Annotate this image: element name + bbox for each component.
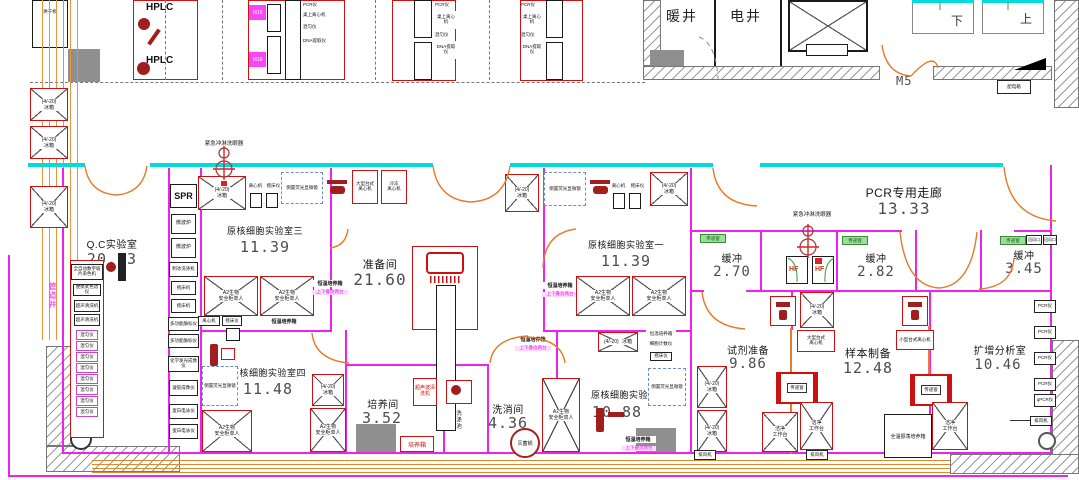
return-air-tag: 回风口 — [1043, 235, 1057, 245]
equip-label: 制冰洗涤机 — [169, 262, 198, 277]
room-prep-area: 21.60 — [352, 270, 408, 289]
equipment-glyph — [596, 408, 604, 432]
equip-label: 混匀仪 — [76, 352, 98, 362]
microscope-glyph — [330, 186, 345, 194]
fridge-box: (4/-20) 冰箱 — [598, 332, 638, 352]
heating-shaft-label: 暖井 — [666, 6, 698, 26]
wall — [915, 230, 917, 290]
auto-incubator-box: 全温振荡培养箱 — [884, 414, 932, 458]
lab-floor-plan: 烘干机 HPLC HPLC M10 M10 PCR仪 桌上离心机 混匀仪 DNA… — [0, 0, 1079, 480]
equipment-glyph — [608, 412, 624, 417]
equip-label: 混匀仪 — [435, 31, 455, 40]
clean-bench: 洁净工作台 — [800, 402, 833, 450]
centrifuge-cold-box: 冷冻离心机 — [381, 170, 407, 204]
equip-label: PCR仪 — [435, 1, 455, 10]
stacked-note: 上下叠放两台 — [312, 290, 348, 295]
cabinet — [266, 193, 278, 208]
door-m5-label: M5 — [896, 74, 912, 88]
cabinet — [629, 193, 641, 209]
wall — [980, 230, 982, 290]
equip-label: 摇床机 — [171, 281, 196, 295]
pass-window: 传递窗 — [776, 372, 818, 404]
microscope-glyph — [327, 180, 347, 184]
equip-label: 多功能酶标仪 — [168, 334, 199, 348]
pcr-machine: PCR仪 — [1034, 326, 1056, 339]
room-amplification-area: 10.46 — [972, 357, 1024, 373]
pipe-shaft-label: 管道井 — [44, 282, 58, 328]
inverted-microscope-box: 倒置荧光显微镜 — [202, 366, 238, 406]
wall-hatch — [1054, 0, 1079, 108]
workstation-glyph — [106, 262, 116, 272]
equip-label: 离心机 — [247, 182, 264, 191]
section-dash — [375, 0, 376, 80]
biosafety-cabinet-double: A2生物安全柜双人 — [542, 378, 580, 452]
wall-hatch — [950, 454, 1079, 474]
centrifuge-small-box: 小型台式离心机 — [896, 330, 934, 350]
fridge-box: (4/-20)冰箱 — [697, 366, 727, 408]
fridge-box: (4/-20)冰箱 — [505, 174, 539, 212]
inverted-microscope-box: 倒置荧光显微镜 — [281, 172, 323, 204]
door-tag: M10 — [249, 52, 266, 67]
room-lab1-name: 原核细胞实验室一 — [566, 238, 686, 251]
fridge-box: (4/-20)冰箱 — [697, 410, 727, 452]
room-buffer3-name: 缓冲 — [1004, 247, 1044, 262]
equip-label: 混匀仪 — [303, 23, 333, 32]
fridge-box: (4/-20)冰箱 — [30, 126, 68, 159]
section-dash — [222, 0, 223, 80]
exterior-wall — [8, 475, 1068, 477]
room-qc-name: Q.C实验室 — [72, 236, 152, 251]
stair-flight — [982, 0, 1044, 34]
equip-label: 化学发光成像仪 — [168, 356, 199, 372]
equip-label: 超声清洗机 — [74, 300, 100, 312]
curtain-wall — [150, 163, 433, 167]
biosafety-cabinet: A2生物安全柜单人 — [202, 410, 252, 452]
cabinet — [267, 4, 281, 32]
power-box: 配电箱 — [997, 80, 1031, 94]
gray-block — [356, 424, 396, 452]
equip-label: 离心机 — [610, 182, 627, 191]
centrifuge-large-box: 大型台式离心机 — [797, 330, 835, 352]
incubator-label: 恒温培养箱 — [266, 318, 302, 325]
biosafety-cabinet: A2生物安全柜单人 — [204, 276, 258, 316]
equip-label: 微波炉 — [171, 238, 196, 258]
equip-label: 混匀仪 — [521, 31, 541, 40]
fridge-box: (4/-20)冰箱 — [198, 176, 246, 210]
stair-up-label: 上 — [1020, 10, 1032, 27]
door-tag: M10 — [249, 5, 266, 20]
room-buffer1-name: 缓冲 — [712, 250, 752, 265]
equip-label: 微波炉 — [171, 214, 196, 234]
cabinet — [226, 328, 240, 341]
equip-label: 桌上离心机 — [303, 11, 341, 20]
sink-label: 洗涤池 — [450, 410, 462, 442]
fridge-box: (4/-20)冰箱 — [30, 186, 68, 228]
shaft-wall — [714, 0, 716, 66]
wall — [1014, 230, 1052, 232]
service-band — [92, 458, 954, 473]
curtain-wall — [510, 163, 713, 167]
biosafety-cabinet: A2生物安全柜单人 — [310, 408, 346, 452]
equip-label: 混匀仪 — [76, 374, 98, 384]
equip-label: 超声清洗机 — [74, 314, 100, 326]
stacked-note: 上下叠放两台 — [515, 346, 551, 351]
cabinet — [250, 193, 262, 208]
incubator-red-box: 培养箱 — [400, 436, 434, 452]
biosafety-cabinet: A2生物安全柜单人 — [576, 276, 630, 316]
curtain-wall — [760, 163, 1003, 167]
hplc-glyph — [138, 18, 150, 30]
section-dash — [489, 0, 490, 80]
pass-window-tag: 传递窗 — [1000, 236, 1026, 245]
hf-label: HF — [789, 266, 798, 273]
incubator-label: 恒温培养箱 — [312, 280, 348, 287]
clean-bench: 洁净工作台 — [932, 402, 968, 450]
room-lab4-area: 11.48 — [240, 380, 296, 398]
incubator-label: 恒温培养箱 — [514, 336, 552, 343]
equipment-glyph — [911, 310, 919, 320]
equip-label: PCR仪 — [521, 1, 541, 10]
fridge-box: (4/-20)冰箱 — [650, 172, 688, 206]
exhaust-fan-tag: 排风机 — [1030, 416, 1052, 426]
equipment-glyph — [779, 310, 787, 320]
microscope-glyph — [590, 180, 610, 184]
wall — [836, 230, 838, 290]
equip-label: 摇床仪 — [222, 316, 242, 326]
bench — [285, 0, 301, 80]
cabinet — [546, 42, 563, 80]
curtain-wall — [28, 163, 85, 167]
room-lab3-name: 原核细胞实验室三 — [202, 224, 328, 237]
room-buffer1-area: 2.70 — [710, 264, 754, 280]
wall — [746, 290, 1052, 292]
equip-label: PCR仪 — [303, 1, 333, 10]
exhaust-fan-tag: 排风机 — [806, 450, 828, 460]
ultrasonic-washer-box: 超声波清洗机 — [413, 378, 437, 406]
electric-shaft-label: 电井 — [730, 6, 762, 26]
pcr-machine: PCR仪 — [1034, 300, 1056, 313]
equip-label: 离心机 — [198, 316, 220, 326]
cabinet — [267, 36, 281, 74]
stair-flight — [912, 0, 974, 34]
microscope-glyph — [593, 186, 608, 194]
equipment-glyph — [776, 302, 790, 307]
equip-label: 全自动数字玻片染色机 — [71, 264, 103, 280]
hplc-label: HPLC — [146, 55, 194, 68]
equip-label: 混匀仪 — [76, 341, 98, 351]
emergency-shower-label: 紧急冲淋洗眼器 — [192, 139, 256, 148]
equipment-glyph — [430, 276, 460, 283]
equip-label: 凝胶成像仪 — [169, 380, 198, 396]
exhaust-fan-tag: 排风机 — [694, 450, 716, 460]
biosafety-cabinet: A2生物安全柜单人 — [632, 276, 686, 316]
equipment-glyph — [908, 302, 922, 307]
leader-line — [1010, 420, 1030, 421]
equip-label: 混匀仪 — [76, 407, 98, 417]
equipment-glyph — [210, 344, 218, 366]
room-buffer3-area: 3.45 — [1002, 261, 1046, 277]
fridge-box: (4/-20)冰箱 — [30, 88, 68, 121]
cabinet — [546, 0, 563, 38]
equip-label: 摇床仪 — [265, 182, 282, 191]
equip-label: 细胞计数仪 — [646, 340, 676, 349]
floor-drain — [1038, 432, 1056, 450]
fridge-box: (4/-20)冰箱 — [800, 292, 834, 328]
room-amplification-name: 扩增分析室 — [962, 342, 1038, 357]
stair-edge — [912, 0, 974, 3]
equip-label: 蛋白电泳仪 — [169, 404, 198, 419]
equip-label: DNA提取仪 — [521, 41, 543, 59]
wall — [690, 290, 704, 292]
stacked-note: 上下叠放两台 — [542, 292, 578, 297]
equip-label: 桌上离心机 — [521, 11, 543, 29]
return-air-tag: 回风口 — [1026, 235, 1042, 245]
exterior-wall — [8, 255, 10, 477]
wall — [690, 168, 692, 454]
cabinet — [414, 42, 432, 80]
wall — [200, 330, 332, 332]
stair-down-label: 下 — [951, 12, 963, 29]
inverted-microscope-box: 倒置荧光显微镜 — [648, 368, 686, 406]
room-reagent-area: 9.86 — [724, 356, 772, 372]
equip-label: 摇床仪 — [629, 182, 646, 191]
pass-window-tag: 传递窗 — [700, 234, 726, 243]
stair-edge — [982, 0, 1044, 3]
workstation-glyph — [118, 253, 126, 281]
spr-box: SPR — [170, 184, 197, 208]
room-corridor-area: 13.33 — [876, 199, 932, 218]
qpcr-machine: qPCR仪 — [1034, 394, 1056, 407]
equip-label: DNA提取仪 — [303, 37, 343, 46]
inverted-microscope-box: 倒置荧光显微镜 — [544, 172, 586, 206]
room-lab3-area: 11.39 — [235, 238, 295, 256]
equip-label: 恒温培养箱 — [646, 330, 676, 339]
equipment-glyph — [426, 252, 464, 274]
ramp-triangle — [1014, 58, 1046, 70]
equip-label: 便携式色谱仪 — [73, 284, 101, 296]
pcr-machine: PCR仪 — [1034, 352, 1056, 365]
equip-label: DNA提取仪 — [435, 41, 457, 59]
equip-label: 混匀仪 — [76, 363, 98, 373]
cut-line — [30, 82, 645, 83]
wall — [345, 364, 489, 366]
room-buffer2-area: 2.82 — [854, 264, 898, 280]
emergency-shower-label: 紧急冲淋洗眼器 — [780, 210, 844, 219]
wall — [690, 230, 902, 232]
stacked-note: 上下叠放两台 — [622, 446, 656, 451]
section-dash — [165, 0, 166, 80]
fridge-box: (4/-20)冰箱 — [312, 374, 344, 406]
equip-label: 摇床机 — [171, 299, 196, 313]
equip-label: 摇床仪 — [650, 352, 672, 361]
autoclave: 灭菌锅 — [510, 428, 540, 458]
equip-label: 混匀仪 — [76, 385, 98, 395]
room-reagent-name: 试剂准备 — [722, 342, 774, 357]
elevator-door — [806, 44, 848, 56]
incubator-label: 恒温培养箱 — [620, 436, 656, 443]
hplc-glyph — [137, 62, 150, 75]
room-lab1-area: 11.39 — [586, 252, 666, 270]
clean-bench: 洁净工作台 — [762, 412, 798, 452]
equip-label: 蛋白电泳仪 — [169, 424, 198, 439]
biosafety-cabinet: A2生物安全柜单人 — [260, 276, 314, 316]
room-buffer2-name: 缓冲 — [856, 250, 896, 265]
shaft-wall — [780, 0, 782, 66]
wall — [760, 230, 762, 290]
equipment-glyph — [451, 385, 461, 395]
equip-label: 混匀仪 — [76, 330, 98, 340]
incubator-label: 恒温培养箱 — [542, 282, 578, 289]
equip-label: 混匀仪 — [76, 396, 98, 406]
cabinet — [414, 0, 432, 38]
hf-label: HF — [815, 266, 824, 273]
equipment-glyph — [221, 348, 235, 360]
hplc-label: HPLC — [146, 2, 194, 15]
room-sample-area: 12.48 — [840, 359, 896, 377]
equip-label: 多功能酶标仪 — [168, 317, 199, 331]
equip-label: 桌上离心机 — [435, 11, 457, 29]
pcr-machine: PCR仪 — [1034, 378, 1056, 391]
cabinet — [613, 193, 625, 209]
pass-window-tag: 传递窗 — [842, 236, 868, 245]
wall-hatch — [643, 66, 880, 80]
centrifuge-large-box: 大型台式离心机 — [352, 170, 378, 204]
